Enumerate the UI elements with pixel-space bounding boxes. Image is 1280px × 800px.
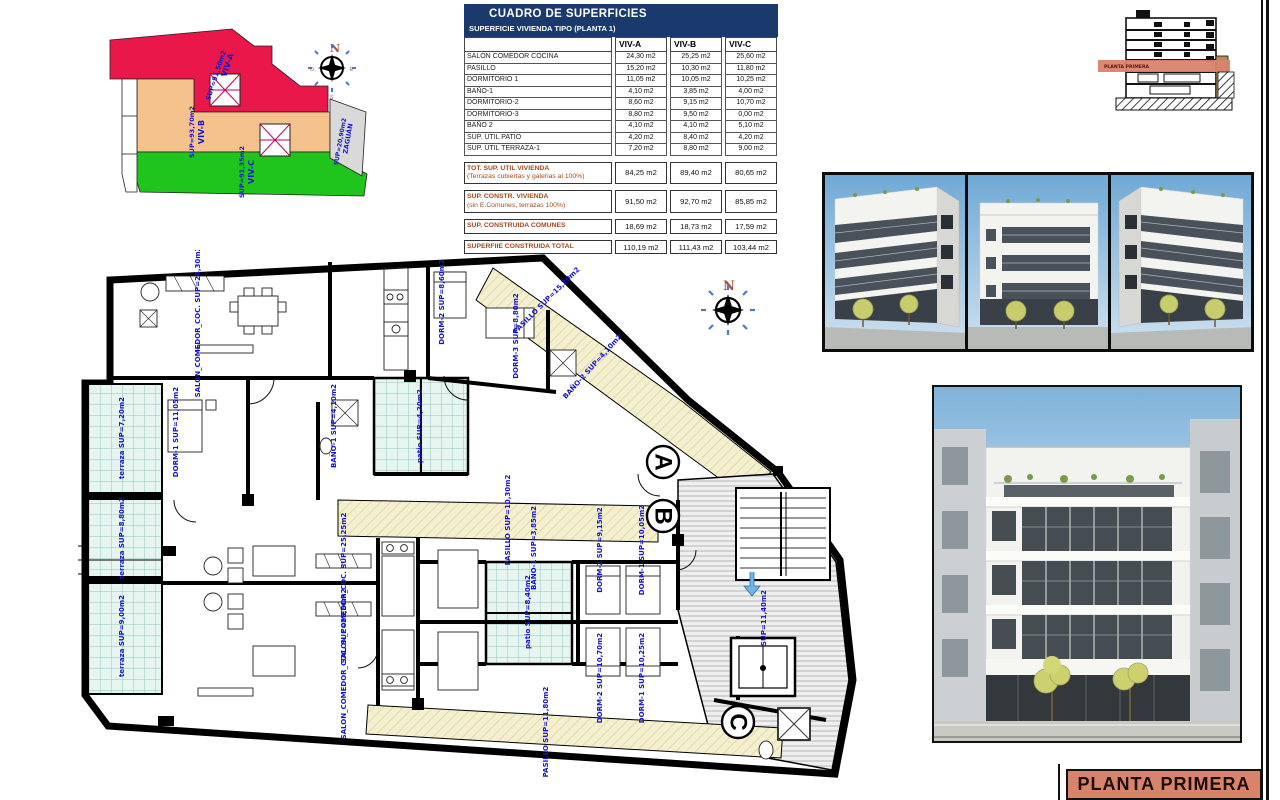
column-header: VIV-B [670,37,722,52]
plan-label: DORM-1 SUP=11,05m2 [172,387,180,477]
row-label: BAÑO 2 [464,121,612,133]
table-row: PASILLO 15,20 m2 10,30 m2 11,80 m2 [464,64,778,76]
summary-value: 89,40 m2 [670,162,722,185]
marker-c: C [725,713,752,730]
row-value: 4,00 m2 [725,87,777,99]
marker-a: A [650,453,677,470]
summary-label: TOT. SUP. UTIL VIVIENDA [467,165,549,172]
row-value: 10,05 m2 [670,75,722,87]
column-header: VIV-C [725,37,777,52]
row-value: 8,40 m2 [670,133,722,145]
areas-table: CUADRO DE SUPERFICIES SUPERFICIE VIVIEND… [464,4,778,254]
summary-value: 18,69 m2 [615,219,667,233]
row-value: 8,80 m2 [615,110,667,122]
summary-value: 85,85 m2 [725,190,777,213]
row-value: 10,25 m2 [725,75,777,87]
areas-table-header: CUADRO DE SUPERFICIES SUPERFICIE VIVIEND… [464,4,778,37]
stair-core-symbol [260,124,290,156]
large-render [932,385,1242,743]
row-value: 8,60 m2 [615,98,667,110]
column-header-blank [464,37,612,52]
site-unit-c-sup: SUP=91,35m2 [238,146,246,198]
table-row: BAÑO 2 4,10 m2 4,10 m2 5,10 m2 [464,121,778,133]
row-value: 5,10 m2 [725,121,777,133]
table-row: SALON COMEDOR COCINA 24,30 m2 25,25 m2 2… [464,52,778,64]
plan-label: PASILLO SUP=11,80m2 [542,687,550,778]
row-value: 25,25 m2 [670,52,722,64]
plan-label: SALON_COMEDOR_COC. SUP=25,60m2 [340,588,348,739]
summary-value: 91,50 m2 [615,190,667,213]
plan-label: DORM-1 SUP=10,25m2 [638,633,646,723]
areas-table-subtitle: SUPERFICIE VIVIENDA TIPO (PLANTA 1) [469,24,773,33]
plan-label: terraza SUP=7,20m2 [118,397,126,479]
plan-label: SUP=11,40m2 [760,590,768,646]
row-value: 9,00 m2 [725,144,777,156]
plan-label: DORM-3 SUP=8,80m2 [512,293,520,379]
row-value: 11,05 m2 [615,75,667,87]
plan-label: SALON_COMEDOR_COC. SUP=24,30m2 [194,250,202,397]
table-row: DORMITORIO-2 8,60 m2 9,15 m2 10,70 m2 [464,98,778,110]
row-label: BAÑO-1 [464,87,612,99]
site-unit-b-sup: SUP=93,70m2 [188,106,196,158]
summary-value: 92,70 m2 [670,190,722,213]
row-label: PASILLO [464,64,612,76]
row-value: 10,70 m2 [725,98,777,110]
row-value: 8,80 m2 [670,144,722,156]
areas-table-columns-row: VIV-A VIV-B VIV-C [464,37,778,52]
row-value: 10,30 m2 [670,64,722,76]
summary-sublabel: (Terrazas cubiertas y galerias al 100%) [467,173,585,180]
row-value: 0,00 m2 [725,110,777,122]
marker-b: B [650,507,677,524]
plan-compass-icon: N [701,279,755,335]
summary-label: SUP. CONSTRUIDA COMUNES [464,219,612,233]
summary-row: TOT. SUP. UTIL VIVIENDA (Terrazas cubier… [464,162,778,185]
row-label: DORMITORIO 1 [464,75,612,87]
row-value: 3,85 m2 [670,87,722,99]
row-value: 4,20 m2 [725,133,777,145]
summary-row: SUP. CONSTR. VIVIENDA (sin E.Comunes, te… [464,190,778,213]
row-label: DORMITORIO-2 [464,98,612,110]
table-row: BAÑO-1 4,10 m2 3,85 m2 4,00 m2 [464,87,778,99]
plan-label: DORM-2 SUP=9,15m2 [596,507,604,593]
areas-table-title: CUADRO DE SUPERFICIES [469,8,773,20]
summary-value: 84,25 m2 [615,162,667,185]
page-frame-line [1261,0,1263,800]
title-block: PLANTA PRIMERA [1066,769,1262,800]
row-label: SUP. ÚTIL PATIO [464,133,612,145]
sheet-title: PLANTA PRIMERA [1078,774,1251,795]
plan-label: DORM-2 SUP=8,60m2 [438,259,446,345]
plan-label: patio SUP=4,20m2 [416,389,424,463]
column-header: VIV-A [615,37,667,52]
svg-text:O: O [310,67,314,73]
plan-label: PASILLO SUP=10,30m2 [504,475,512,566]
summary-value: 18,73 m2 [670,219,722,233]
page-frame-line [1266,0,1269,800]
plan-label: terraza SUP=9,00m2 [118,595,126,677]
section-band-label: PLANTA PRIMERA [1104,64,1149,70]
table-row: DORMITORIO-3 8,80 m2 9,50 m2 0,00 m2 [464,110,778,122]
drawing-sheet: P. PRIMERA VIV-A SUP=91,50m2 VI [0,0,1280,800]
render-facade-right [1108,175,1251,349]
row-value: 4,10 m2 [615,121,667,133]
summary-label: SUP. CONSTR. VIVIENDA [467,193,548,200]
row-value: 4,10 m2 [615,87,667,99]
row-value: 25,60 m2 [725,52,777,64]
row-value: 4,10 m2 [670,121,722,133]
render-facade-front [965,175,1108,349]
site-plan: VIV-A SUP=91,50m2 VIV-B SUP=93,70m2 VIV-… [82,24,384,220]
row-label: SALON COMEDOR COCINA [464,52,612,64]
plan-label: terraza SUP=8,80m2 [118,497,126,579]
row-label: SUP. ÚTIL TERRAZA-1 [464,144,612,156]
frame-segment [1058,764,1060,800]
row-value: 15,20 m2 [615,64,667,76]
plan-label: DORM-2 SUP=10,70m2 [596,633,604,723]
table-row: SUP. ÚTIL TERRAZA-1 7,20 m2 8,80 m2 9,00… [464,144,778,156]
ground-hatch [1116,98,1232,110]
row-value: 11,80 m2 [725,64,777,76]
table-row: SUP. ÚTIL PATIO 4,20 m2 8,40 m2 4,20 m2 [464,133,778,145]
table-row: DORMITORIO 1 11,05 m2 10,05 m2 10,25 m2 [464,75,778,87]
pasillo-band-mid [338,500,658,542]
plan-label: BAÑO-1 SUP=4,10m2 [329,384,338,468]
site-unit-b-name: VIV-B [197,120,206,144]
row-value: 7,20 m2 [615,144,667,156]
site-unit-c-name: VIV-C [247,160,256,184]
row-value: 9,15 m2 [670,98,722,110]
row-value: 4,20 m2 [615,133,667,145]
summary-value: 17,59 m2 [725,219,777,233]
summary-value: 80,65 m2 [725,162,777,185]
summary-row: SUP. CONSTRUIDA COMUNES 18,69 m2 18,73 m… [464,219,778,233]
row-value: 24,30 m2 [615,52,667,64]
row-value: 9,50 m2 [670,110,722,122]
row-label: DORMITORIO-3 [464,110,612,122]
render-strip [822,172,1254,352]
svg-text:N: N [330,42,340,55]
summary-sublabel: (sin E.Comunes, terrazas 100%) [467,202,565,209]
building-section-drawing: PLANTA PRIMERA [1098,6,1263,114]
staircase [736,488,830,596]
floor-plan: A B C N SALON_COMEDOR_COC. SU [78,250,868,790]
plan-label: DORM-1 SUP=10,05m2 [638,505,646,595]
plan-label: BAÑO-1 SUP=3,85m2 [529,506,538,590]
